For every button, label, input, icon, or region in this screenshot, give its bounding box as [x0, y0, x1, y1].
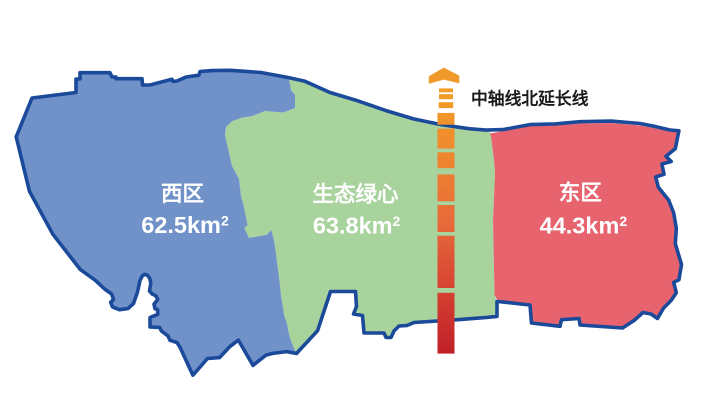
svg-text:西区: 西区 [161, 182, 204, 206]
svg-text:东区: 东区 [559, 180, 602, 205]
svg-text:62.5km2: 62.5km2 [141, 212, 229, 238]
svg-text:生态绿心: 生态绿心 [312, 182, 399, 207]
svg-text:63.8km2: 63.8km2 [313, 213, 401, 239]
svg-text:中轴线北延长线: 中轴线北延长线 [471, 89, 589, 109]
svg-text:44.3km2: 44.3km2 [540, 213, 628, 239]
